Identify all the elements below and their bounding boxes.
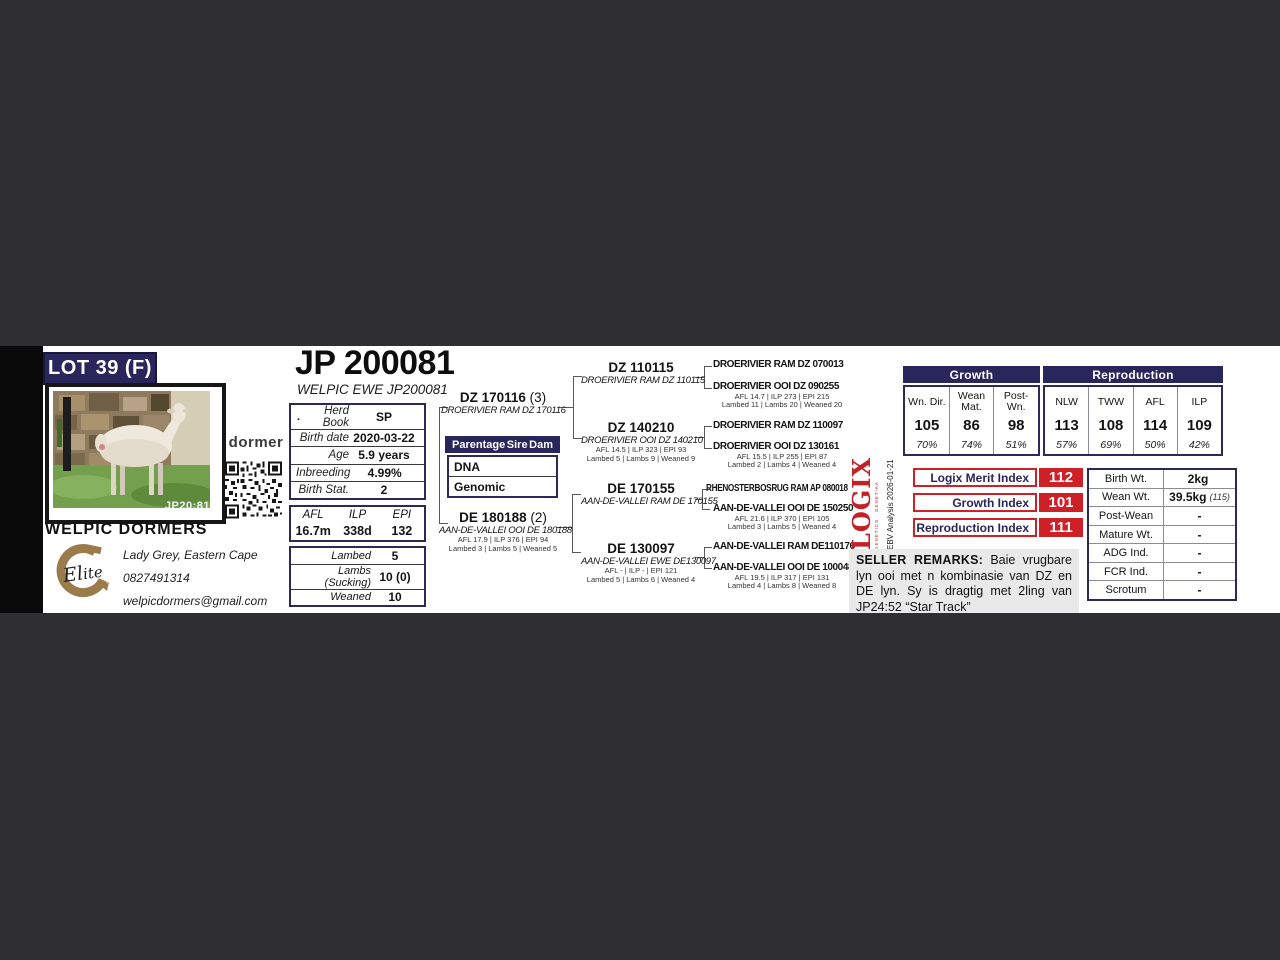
table-row: Age 5.9 years [291, 446, 424, 463]
elite-breeder-logo: Elite [51, 542, 113, 611]
photo-watermark: JP20:81 [165, 500, 210, 512]
ebv-value: 113 [1055, 418, 1079, 434]
pedigree-node-gen2: DZ 110115 DROERIVIER RAM DZ 110115 [581, 360, 701, 386]
breeder-name: WELPIC DORMERS [45, 521, 207, 539]
dam-stats: Lambed 3 | Lambs 5 | Weaned 5 [439, 545, 567, 554]
pedigree-node-gen3: AAN-DE-VALLEI RAM DE110176 [713, 542, 851, 553]
table-row: Lambs (Sucking) 10 (0) [291, 564, 424, 589]
table-row: Birth date 2020-03-22 [291, 429, 424, 446]
pedigree-node-gen3: AAN-DE-VALLEI OOI DE 100048 AFL 19.5 | I… [713, 563, 851, 591]
ebv-column: Post- Wn. 98 51% [993, 387, 1038, 454]
page: LOT 39 (F) [0, 0, 1280, 960]
ebv-accuracy: 51% [1006, 439, 1027, 451]
info-label: Inbreeding [296, 467, 350, 479]
pedigree-line [572, 552, 581, 553]
ancestor-stats: Lambed 4 | Lambs 8 | Weaned 8 [713, 582, 851, 591]
ebv-trait: Post- Wn. [994, 391, 1038, 413]
ancestor-name: RHENOSTERBOSRUG RAM AP 080018 [706, 484, 819, 495]
pedigree-node-gen3: DROERIVIER OOI DZ 090255 AFL 14.7 | ILP … [713, 382, 851, 410]
table-row: Weaned 10 [291, 589, 424, 606]
ebv-column: TWW 108 69% [1088, 387, 1132, 454]
info-value: 4.99% [350, 466, 419, 480]
animal-full-name: WELPIC EWE JP200081 [297, 382, 448, 397]
info-label: Herd Book [296, 405, 349, 429]
ebv-value: 108 [1098, 418, 1123, 434]
weight-label: Wean Wt. [1089, 489, 1164, 507]
pedigree-node-gen2: DE 130097 AAN-DE-VALLEI EWE DE130097 AFL… [581, 541, 701, 584]
lamb-value: 10 [371, 590, 419, 604]
breeder-phone: 0827491314 [123, 567, 267, 590]
weight-value: - [1198, 509, 1202, 523]
ancestor-id: DZ 110115 [581, 360, 701, 375]
pedigree-line [702, 509, 710, 510]
ilp-header: ILP [335, 509, 379, 521]
parentage-row-dna: DNA [449, 457, 556, 476]
ancestor-name: AAN-DE-VALLEI OOI DE 150250 [713, 504, 851, 515]
breeder-contact: Lady Grey, Eastern Cape 0827491314 welpi… [123, 544, 267, 613]
lamb-value: 10 (0) [371, 570, 419, 584]
weight-value: 39.5kg [1169, 490, 1206, 504]
info-value: 2 [349, 483, 419, 497]
table-row: . Herd Book SP [291, 405, 424, 429]
lamb-label: Lambs (Sucking) [296, 565, 371, 589]
ancestor-stats: Lambed 5 | Lambs 9 | Weaned 9 [581, 455, 701, 464]
lamb-value: 5 [371, 549, 419, 563]
pedigree-line [704, 448, 712, 449]
animal-id-title: JP 200081 [295, 344, 454, 383]
ebv-value: 105 [914, 418, 939, 434]
ebv-accuracy: 74% [961, 439, 982, 451]
logix-merit-index-value: 112 [1039, 468, 1083, 487]
info-value: 2020-03-22 [349, 431, 419, 445]
pedigree-line [572, 494, 573, 553]
ebv-accuracy: 57% [1056, 439, 1077, 451]
pedigree-node-gen3: DROERIVIER RAM DZ 070013 [713, 360, 851, 371]
qr-code [225, 458, 282, 527]
weight-label: Mature Wt. [1089, 526, 1164, 544]
row-prefix: . [297, 411, 300, 423]
ancestor-name: DROERIVIER RAM DZ 070013 [713, 360, 851, 371]
pedigree-node-gen2: DE 170155 AAN-DE-VALLEI RAM DE 170155 [581, 481, 701, 507]
sire-id: DZ 170116 [460, 390, 526, 405]
pedigree-node-gen3: DROERIVIER RAM DZ 110097 [713, 421, 851, 432]
reproduction-index-label: Reproduction Index [913, 518, 1037, 537]
ancestor-id: DE 130097 [581, 541, 701, 556]
ancestor-name: DROERIVIER RAM DZ 110115 [581, 375, 701, 386]
ebv-value: 98 [1008, 418, 1025, 434]
sire-col: Sire [507, 439, 528, 451]
pedigree-line [572, 494, 581, 495]
ebv-column: ILP 109 42% [1177, 387, 1221, 454]
reproduction-ebv-table: NLW 113 57% TWW 108 69% AFL 114 50% ILP … [1043, 385, 1223, 456]
reproduction-index-value: 111 [1039, 518, 1083, 537]
parentage-table: DNA Genomic [447, 455, 558, 498]
lambing-table: Lambed 5 Lambs (Sucking) 10 (0) Weaned 1… [289, 546, 426, 607]
pedigree-line [704, 366, 712, 367]
pedigree-node-dam: DE 180188 (2) AAN-DE-VALLEI OOI DE 18018… [439, 510, 567, 553]
afl-header: AFL [291, 509, 335, 521]
ebv-column: Wn. Dir. 105 70% [905, 387, 949, 454]
table-row: ADG Ind. - [1089, 543, 1235, 562]
ilp-value: 338d [335, 524, 379, 538]
epi-header: EPI [380, 509, 424, 521]
ebv-trait: TWW [1098, 391, 1124, 413]
weight-value: - [1198, 583, 1202, 597]
weights-table: Birth Wt. 2kg Wean Wt. 39.5kg(115) Post-… [1087, 468, 1237, 601]
ebv-accuracy: 42% [1189, 439, 1210, 451]
lot-badge: LOT 39 (F) [43, 352, 157, 385]
info-label: Birth Stat. [296, 484, 349, 496]
breeder-email: welpicdormers@gmail.com [123, 590, 267, 613]
lamb-label: Lambed [296, 550, 371, 562]
growth-ebv-table: Wn. Dir. 105 70% Wean Mat. 86 74% Post- … [903, 385, 1040, 456]
afl-value: 16.7m [291, 524, 335, 538]
pedigree-node-gen3: AAN-DE-VALLEI OOI DE 150250 AFL 21.6 | I… [713, 504, 851, 532]
dam-id: DE 180188 [459, 510, 527, 525]
logix-merit-index-label: Logix Merit Index [913, 468, 1037, 487]
table-row: Wean Wt. 39.5kg(115) [1089, 488, 1235, 507]
ancestor-name: AAN-DE-VALLEI RAM DE110176 [713, 542, 851, 553]
pedigree-node-gen3: DROERIVIER OOI DZ 130161 AFL 15.5 | ILP … [713, 442, 851, 470]
table-row: Post-Wean - [1089, 506, 1235, 525]
table-row: Birth Stat. 2 [291, 481, 424, 498]
pedigree-line [704, 568, 712, 569]
ebv-accuracy: 69% [1100, 439, 1121, 451]
ebv-column: Wean Mat. 86 74% [949, 387, 994, 454]
ancestor-name: DROERIVIER OOI DZ 130161 [713, 442, 851, 453]
animal-photo: JP20:81 [45, 383, 226, 524]
ebv-trait: Wean Mat. [950, 391, 994, 413]
parentage-col: Parentage [452, 439, 505, 451]
ancestor-stats: Lambed 3 | Lambs 5 | Weaned 4 [713, 523, 851, 532]
lamb-label: Weaned [296, 591, 371, 603]
ancestor-name: AAN-DE-VALLEI RAM DE 170155 [581, 496, 701, 507]
info-label: Birth date [296, 432, 349, 444]
pedigree-line [439, 407, 440, 524]
ancestor-stats: Lambed 5 | Lambs 6 | Weaned 4 [581, 576, 701, 585]
weight-value: - [1198, 565, 1202, 579]
growth-index-label: Growth Index [913, 493, 1037, 512]
ebv-accuracy: 50% [1145, 439, 1166, 451]
table-row: FCR Ind. - [1089, 562, 1235, 581]
ancestor-name: AAN-DE-VALLEI OOI DE 100048 [713, 563, 851, 574]
seller-remarks-title: SELLER REMARKS: [856, 553, 983, 567]
weight-label: Birth Wt. [1089, 470, 1164, 488]
growth-header: Growth [903, 366, 1040, 383]
weight-value: - [1198, 528, 1202, 542]
pedigree-node-gen3: RHENOSTERBOSRUG RAM AP 080018 [706, 484, 844, 495]
catalog-sheet: LOT 39 (F) [43, 346, 1280, 613]
ancestor-name: DROERIVIER OOI DZ 090255 [713, 382, 851, 393]
weight-label: Scrotum [1089, 581, 1164, 599]
animal-info-table: . Herd Book SP Birth date 2020-03-22 Age… [289, 403, 426, 500]
ebv-value: 86 [963, 418, 980, 434]
table-row: Mature Wt. - [1089, 525, 1235, 544]
ancestor-stats: Lambed 11 | Lambs 20 | Weaned 20 [713, 401, 851, 410]
weight-label: ADG Ind. [1089, 544, 1164, 562]
ancestor-id: DZ 140210 [581, 420, 701, 435]
dam-col: Dam [529, 439, 553, 451]
table-row: Scrotum - [1089, 580, 1235, 599]
table-row: Birth Wt. 2kg [1089, 470, 1235, 488]
pedigree-line [704, 426, 712, 427]
info-value: SP [349, 410, 419, 424]
info-label: Age [296, 449, 349, 461]
ebv-column: NLW 113 57% [1045, 387, 1088, 454]
weight-note: (115) [1210, 492, 1230, 502]
table-row: Lambed 5 [291, 548, 424, 564]
analysis-date-text: EBV Analysis 2026-01-21 [886, 462, 895, 550]
pedigree-line [704, 426, 705, 449]
weight-label: Post-Wean [1089, 507, 1164, 525]
ebv-value: 114 [1143, 418, 1167, 434]
pedigree-line [573, 376, 574, 439]
sheep-photo-illustration [53, 391, 210, 508]
sire-suffix: (3) [530, 390, 547, 405]
ebv-trait: ILP [1191, 391, 1207, 413]
table-row: Inbreeding 4.99% [291, 464, 424, 481]
ebv-trait: AFL [1145, 391, 1164, 413]
logix-wordmark: LOGIX [850, 462, 874, 550]
seller-remarks: SELLER REMARKS: Baie vrugbare lyn ooi me… [849, 549, 1079, 613]
reproduction-header: Reproduction [1043, 366, 1223, 383]
left-black-strip [0, 346, 43, 613]
ancestor-name: DROERIVIER RAM DZ 110097 [713, 421, 851, 432]
weight-label: FCR Ind. [1089, 563, 1164, 581]
ebv-column: AFL 114 50% [1133, 387, 1177, 454]
parentage-row-genomic: Genomic [449, 476, 556, 496]
pedigree-line [704, 547, 712, 548]
afl-ilp-epi-table: AFL ILP EPI 16.7m 338d 132 [289, 505, 426, 542]
epi-value: 132 [380, 524, 424, 538]
ancestor-id: DE 170155 [581, 481, 701, 496]
dam-suffix: (2) [530, 510, 547, 525]
ancestor-stats: Lambed 2 | Lambs 4 | Weaned 4 [713, 461, 851, 470]
info-value: 5.9 years [349, 448, 419, 462]
ebv-analysis-date: EBV Analysis 2026-01-21 [886, 462, 898, 550]
qr-code-image [225, 458, 282, 522]
breeder-location: Lady Grey, Eastern Cape [123, 544, 267, 567]
ebv-trait: NLW [1055, 391, 1078, 413]
ebv-value: 109 [1187, 418, 1212, 434]
logix-logo: LOGIX GENETICS · GENETIKA [850, 462, 886, 550]
ebv-trait: Wn. Dir. [908, 391, 945, 413]
weight-value: - [1198, 546, 1202, 560]
sire-name: DROERIVIER RAM DZ 170116 [441, 405, 565, 416]
ebv-accuracy: 70% [916, 439, 937, 451]
weight-value: 2kg [1188, 472, 1209, 486]
dormer-logo: dormer [226, 434, 286, 451]
pedigree-line [704, 388, 712, 389]
growth-index-value: 101 [1039, 493, 1083, 512]
pedigree-node-gen2: DZ 140210 DROERIVIER OOI DZ 140210 AFL 1… [581, 420, 701, 463]
parentage-header: Parentage Sire Dam [445, 436, 560, 453]
pedigree-node-sire: DZ 170116 (3) DROERIVIER RAM DZ 170116 [441, 390, 565, 416]
